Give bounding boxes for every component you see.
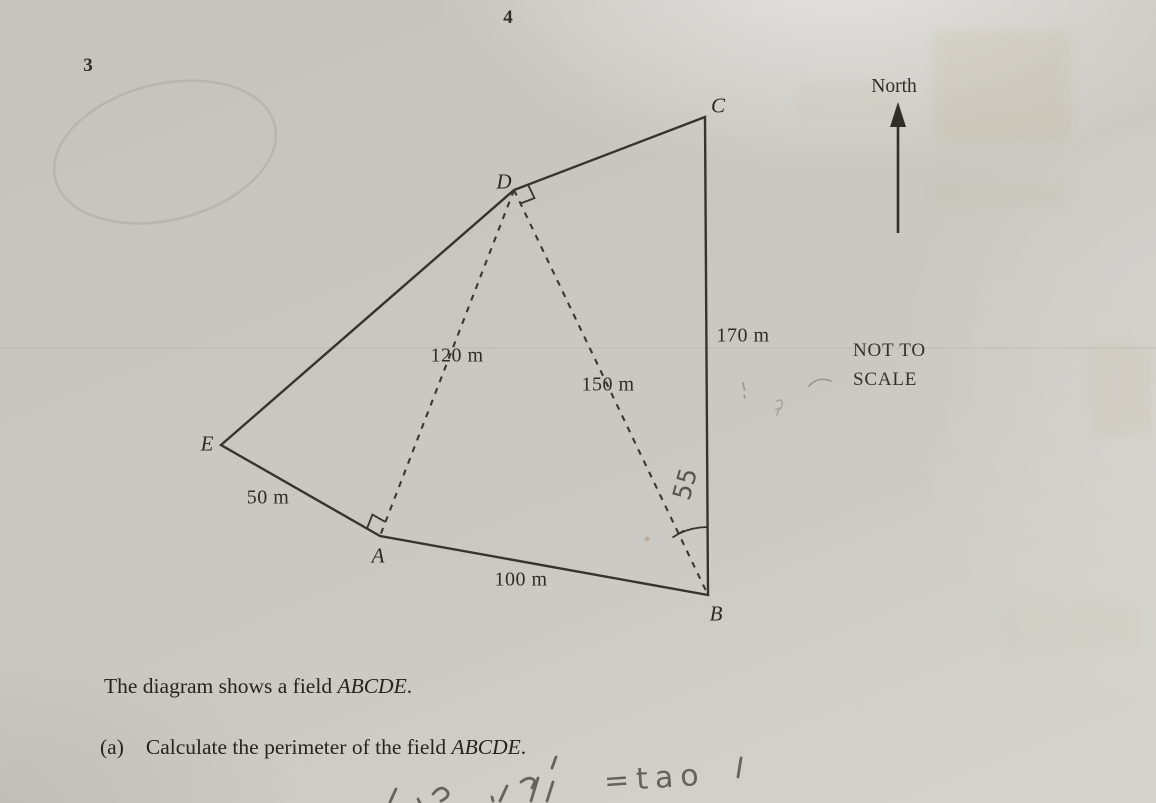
north-arrow (890, 102, 906, 233)
part-a-text: Calculate the perimeter of the field (146, 735, 452, 759)
handwritten-working: =tao (603, 757, 707, 799)
measurement-cb-label: 170 m (716, 325, 769, 348)
question-number: 3 (83, 55, 93, 77)
diagonal-dashed-lines (380, 190, 708, 595)
vertex-label-a: A (372, 544, 385, 569)
vertex-label-b: B (710, 602, 723, 627)
part-a-label: (a) (100, 735, 124, 759)
stray-pencil-marks (645, 379, 832, 541)
right-angle-mark-a (367, 515, 385, 529)
measurement-db-label: 150 m (581, 374, 634, 397)
vertex-label-c: C (711, 94, 725, 119)
question-part-a: (a)Calculate the perimeter of the field … (100, 735, 526, 760)
vertex-label-e: E (201, 432, 214, 457)
north-label: North (871, 76, 917, 98)
caption-period: . (407, 674, 412, 698)
part-a-period: . (521, 735, 526, 759)
north-arrowhead (890, 102, 906, 127)
diagram-caption: The diagram shows a field ABCDE. (104, 674, 412, 699)
faint-pen-oval (39, 59, 291, 246)
part-a-field-name: ABCDE (452, 735, 521, 759)
caption-text: The diagram shows a field (104, 674, 337, 698)
not-to-scale-line2: SCALE (853, 365, 926, 394)
caption-field-name: ABCDE (337, 674, 406, 698)
page-number: 4 (503, 7, 513, 29)
measurement-ea-label: 50 m (247, 487, 290, 510)
vertex-label-d: D (496, 170, 511, 195)
scanned-exam-page: 4 3 A B C D E 120 m 150 m 170 m 50 m 100… (0, 0, 1156, 803)
measurement-ab-label: 100 m (494, 569, 547, 592)
not-to-scale-line1: NOT TO (853, 336, 926, 365)
measurement-da-label: 120 m (430, 345, 483, 368)
not-to-scale-note: NOT TO SCALE (853, 336, 926, 394)
